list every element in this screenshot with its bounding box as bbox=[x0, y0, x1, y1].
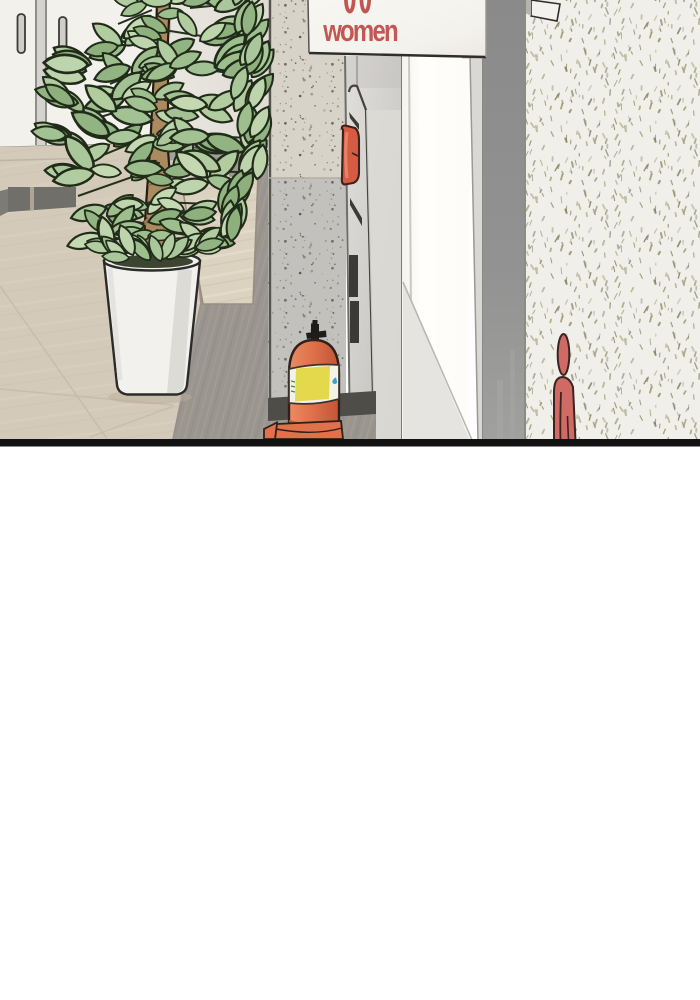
svg-text:women: women bbox=[322, 13, 398, 48]
